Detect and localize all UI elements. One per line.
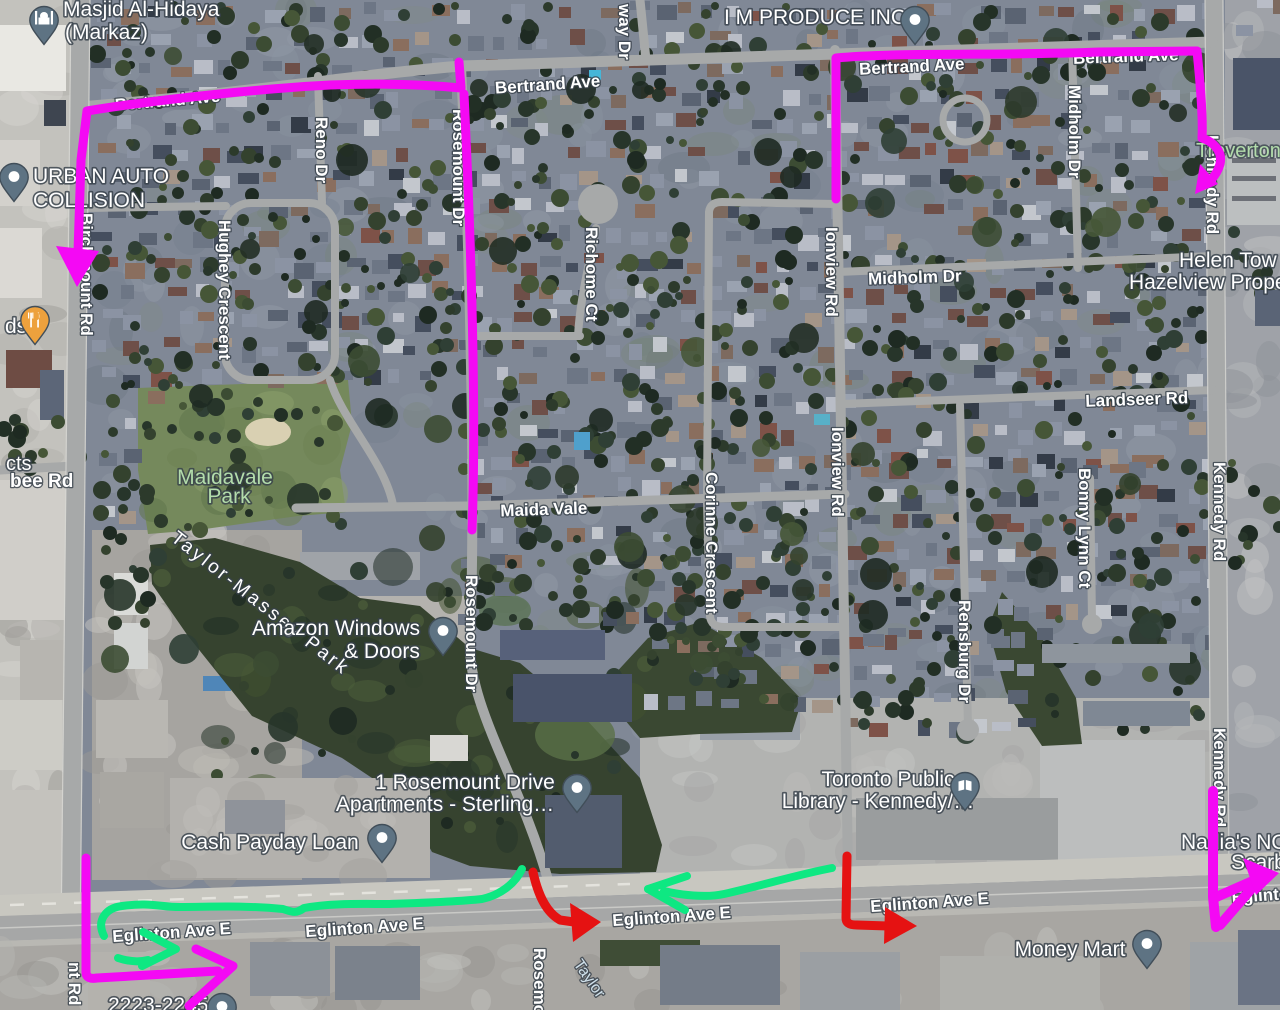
svg-text:URBAN AUTO: URBAN AUTO (33, 165, 169, 188)
svg-text:Hughey Crescent: Hughey Crescent (215, 220, 234, 360)
svg-text:Midholm Dr: Midholm Dr (1065, 85, 1084, 179)
svg-text:Library - Kennedy/…: Library - Kennedy/… (782, 790, 975, 813)
svg-text:Reno Dr: Reno Dr (312, 117, 331, 184)
svg-text:Ionview Rd: Ionview Rd (828, 427, 847, 517)
svg-text:Helen Tow: Helen Tow (1179, 249, 1278, 272)
svg-text:& Doors: & Doors (344, 640, 420, 663)
svg-text:I M PRODUCE INC: I M PRODUCE INC (724, 6, 906, 29)
svg-text:COLLISION: COLLISION (33, 189, 145, 212)
svg-text:Kennedy Rd: Kennedy Rd (1210, 462, 1229, 561)
svg-text:Midholm Dr: Midholm Dr (868, 266, 962, 288)
svg-text:Toronto Public: Toronto Public (821, 768, 954, 791)
svg-text:Money Mart: Money Mart (1015, 938, 1126, 961)
svg-text:Park: Park (207, 485, 251, 508)
svg-text:Landseer Rd: Landseer Rd (1085, 388, 1189, 411)
svg-text:Rosemount Dr: Rosemount Dr (462, 575, 481, 693)
svg-text:way Dr: way Dr (615, 3, 634, 60)
svg-text:cts: cts (6, 453, 32, 475)
svg-text:Apartments - Sterling…: Apartments - Sterling… (336, 793, 554, 816)
svg-text:1 Rosemount Drive: 1 Rosemount Drive (375, 771, 555, 794)
svg-text:Ionview Rd: Ionview Rd (822, 227, 841, 317)
svg-text:Maida Vale: Maida Vale (500, 498, 588, 520)
svg-text:Richome Ct: Richome Ct (582, 227, 601, 322)
svg-text:Bonny Lynn Ct: Bonny Lynn Ct (1075, 468, 1094, 589)
svg-text:Amazon Windows: Amazon Windows (252, 617, 420, 640)
svg-text:nt Rd: nt Rd (65, 962, 84, 1005)
svg-text:Rensburg Dr: Rensburg Dr (955, 600, 974, 703)
svg-text:Corinne Crescent: Corinne Crescent (702, 472, 721, 614)
svg-text:Masjid Al-Hidaya: Masjid Al-Hidaya (63, 0, 220, 21)
svg-text:Hazelview Prope: Hazelview Prope (1129, 271, 1280, 294)
svg-text:Rosemount Dr: Rosemount Dr (530, 948, 549, 1010)
svg-text:Cash Payday Loan: Cash Payday Loan (181, 831, 358, 854)
svg-text:(Markaz): (Markaz) (65, 21, 148, 44)
